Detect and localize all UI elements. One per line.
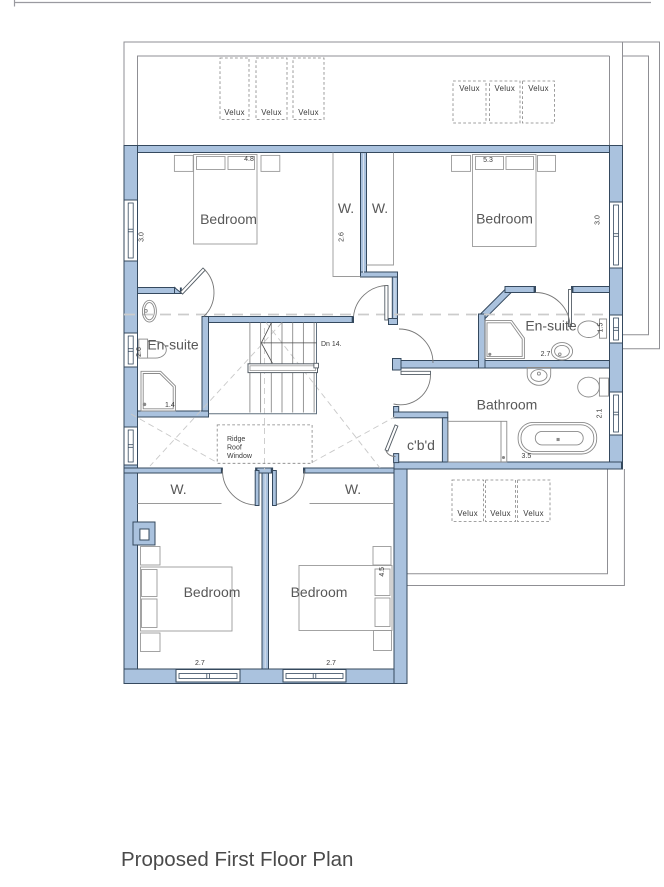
- svg-text:5.3: 5.3: [483, 157, 493, 164]
- svg-text:4.5: 4.5: [379, 567, 386, 577]
- svg-text:Bedroom: Bedroom: [291, 584, 348, 600]
- svg-text:W.: W.: [345, 481, 361, 497]
- svg-text:1.4: 1.4: [165, 402, 175, 409]
- svg-text:2.6: 2.6: [339, 232, 346, 242]
- svg-text:Roof: Roof: [227, 445, 242, 452]
- svg-text:Proposed First Floor Plan: Proposed First Floor Plan: [121, 848, 353, 871]
- svg-text:Velux: Velux: [495, 84, 516, 93]
- svg-text:En-suite: En-suite: [525, 318, 577, 334]
- svg-text:En-suite: En-suite: [147, 337, 199, 353]
- svg-text:1.5: 1.5: [597, 323, 604, 333]
- svg-text:3.5: 3.5: [522, 453, 532, 460]
- svg-text:Window: Window: [227, 453, 253, 460]
- svg-text:Bathroom: Bathroom: [477, 397, 538, 413]
- svg-text:2.7: 2.7: [326, 660, 336, 667]
- svg-text:Bedroom: Bedroom: [200, 211, 257, 227]
- svg-text:Bedroom: Bedroom: [476, 211, 533, 227]
- svg-text:Velux: Velux: [261, 108, 282, 117]
- svg-text:Bedroom: Bedroom: [184, 584, 241, 600]
- svg-text:3.0: 3.0: [595, 215, 602, 225]
- svg-text:Ridge: Ridge: [227, 436, 245, 443]
- svg-text:W.: W.: [338, 200, 354, 216]
- svg-text:Velux: Velux: [459, 84, 480, 93]
- svg-text:2.1: 2.1: [597, 409, 604, 419]
- svg-text:4.8: 4.8: [244, 156, 254, 163]
- svg-text:3.0: 3.0: [138, 232, 145, 242]
- svg-text:2.7: 2.7: [541, 351, 551, 358]
- svg-text:Velux: Velux: [224, 108, 245, 117]
- svg-text:2.7: 2.7: [195, 660, 205, 667]
- svg-text:W.: W.: [372, 200, 388, 216]
- svg-text:Dn 14.: Dn 14.: [321, 341, 342, 348]
- svg-text:Velux: Velux: [457, 509, 478, 518]
- svg-text:Velux: Velux: [298, 108, 319, 117]
- svg-text:W.: W.: [170, 481, 186, 497]
- svg-text:Velux: Velux: [490, 509, 511, 518]
- svg-text:c'b'd: c'b'd: [407, 437, 435, 453]
- svg-text:2.6: 2.6: [136, 347, 143, 357]
- svg-text:Velux: Velux: [523, 509, 544, 518]
- svg-text:Velux: Velux: [528, 84, 549, 93]
